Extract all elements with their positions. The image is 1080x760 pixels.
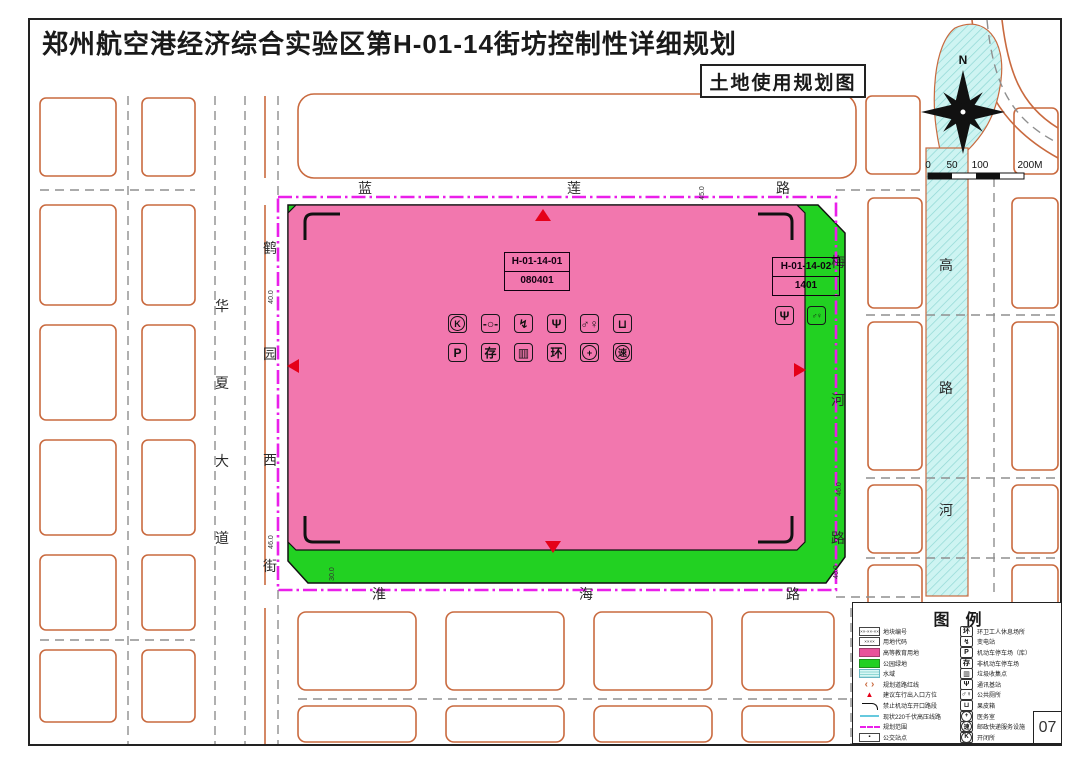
legend-label: 禁止机动车开口路段 — [883, 701, 937, 710]
legend-item: ×××× 用地代码 — [858, 637, 952, 648]
legend-item: Ψ 通讯基站 — [955, 679, 1057, 690]
icon-glyph: ⊔ — [964, 701, 970, 709]
scale-tick: 100 — [972, 160, 989, 171]
icon-glyph: K — [450, 316, 465, 331]
icon-glyph: Ψ — [964, 681, 970, 688]
express-service-icon: 速 — [613, 343, 632, 362]
legend-label: 现状220千伏高压线路 — [883, 712, 941, 721]
dimension-label: 46.0 — [833, 565, 840, 579]
map-subtitle: 土地使用规划图 — [700, 64, 866, 98]
legend-swatch — [859, 722, 880, 731]
legend-label: 环卫工人休息场所 — [977, 627, 1025, 636]
legend-label: 果皮箱 — [977, 701, 995, 710]
legend-label: 地块编号 — [883, 627, 907, 636]
dimension-label: 30.0 — [329, 567, 336, 581]
legend-swatch: ××-××-×× — [859, 627, 880, 636]
switch-station-icon: K — [448, 314, 467, 333]
river-label-gaoluhe: 高路河 — [938, 255, 954, 520]
legend-item: 建议车行出入口方位 — [858, 690, 952, 701]
bicycle-storage-icon: 存 — [960, 658, 973, 669]
garbage-collection-icon: ▥ — [960, 668, 973, 679]
north-label: N — [959, 53, 968, 67]
legend-label: 高等教育用地 — [883, 648, 919, 657]
legend-label: 建议车行出入口方位 — [883, 690, 937, 699]
icon-glyph: P — [453, 346, 461, 360]
plan-title: 郑州航空港经济综合实验区第H-01-14街坊控制性详细规划 — [42, 24, 737, 61]
legend-swatch — [859, 701, 880, 710]
legend-label: 公交站点 — [883, 733, 907, 742]
icon-glyph: ♂♀ — [812, 311, 821, 320]
icon-glyph: + — [582, 345, 597, 360]
public-toilet-icon: ♂♀ — [580, 314, 599, 333]
legend-label: 机动车停车场（库） — [977, 648, 1031, 657]
icon-glyph: 环 — [550, 344, 562, 361]
icon-glyph: 存 — [484, 344, 496, 361]
icon-glyph: 速 — [615, 345, 630, 360]
icon-glyph: Ψ — [780, 309, 790, 323]
legend-item: 禁止机动车开口路段 — [858, 700, 952, 711]
legend-label: 公园绿地 — [883, 659, 907, 668]
legend-item: P 机动车停车场（库） — [955, 647, 1057, 658]
icon-glyph: ▥ — [963, 670, 970, 678]
legend-swatch — [859, 659, 880, 668]
parcel-code: 1401 — [773, 276, 839, 295]
road-label-heyuanxi: 鹤园西街 — [262, 238, 278, 576]
legend-label: 水域 — [883, 669, 895, 678]
legend-title: 图例 — [858, 606, 1057, 626]
bicycle-storage-icon: 存 — [481, 343, 500, 362]
legend-swatch — [859, 733, 880, 742]
parking-icon: P — [960, 647, 973, 658]
scale-tick: 200M — [1017, 160, 1042, 171]
icon-glyph: -○- — [483, 317, 498, 331]
litter-bin-icon: ⊔ — [613, 314, 632, 333]
icon-glyph: Ψ — [552, 317, 562, 331]
legend-label: 垃圾收集点 — [977, 669, 1007, 678]
legend-label: 医务室 — [977, 712, 995, 721]
parcel-label-1: H-01-14-01 080401 — [504, 252, 570, 291]
legend-swatch — [859, 680, 880, 689]
medical-icon: + — [580, 343, 599, 362]
legend-swatch — [859, 690, 880, 699]
legend-label: 非机动车停车场 — [977, 659, 1019, 668]
legend-swatch — [859, 648, 880, 657]
road-label-huaihai: 淮海路 — [372, 586, 800, 602]
medical-icon: + — [960, 711, 973, 722]
road-label-lanlian: 蓝莲路 — [358, 180, 790, 196]
sanitation-rest-icon: 环 — [960, 626, 973, 637]
legend-item: 水域 — [858, 668, 952, 679]
legend-item: 现状220千伏高压线路 — [858, 711, 952, 722]
icon-glyph: ⊔ — [618, 317, 628, 331]
road-label-meihe: 梅河路 — [830, 252, 846, 548]
garbage-collection-icon: ▥ — [514, 343, 533, 362]
telecom-tower-icon: Ψ — [775, 306, 794, 325]
legend-label: 变电站 — [977, 637, 995, 646]
legend-panel: 图例 ××-××-×× 地块编号 ×××× 用地代码 高等教育用地 — [852, 602, 1062, 744]
parcel-id: H-01-14-02 — [773, 258, 839, 276]
facility-icon-grid: K -○- ↯ Ψ ♂♀ ⊔ P 存 ▥ 环 — [448, 314, 632, 362]
legend-swatch — [859, 669, 880, 678]
substation-icon: ↯ — [960, 636, 973, 647]
scale-tick: 0 — [925, 160, 931, 171]
switch-station-icon: K — [960, 732, 973, 743]
legend-item: 存 非机动车停车场 — [955, 658, 1057, 669]
legend-item: 高等教育用地 — [858, 647, 952, 658]
legend-item: ⊔ 果皮箱 — [955, 700, 1057, 711]
sanitation-rest-icon: 环 — [547, 343, 566, 362]
scale-tick: 50 — [946, 160, 958, 171]
legend-item: ××-××-×× 地块编号 — [858, 626, 952, 637]
icon-glyph: ↯ — [964, 638, 970, 646]
legend-left-column: ××-××-×× 地块编号 ×××× 用地代码 高等教育用地 公园绿地 — [858, 626, 952, 743]
legend-item: 公交站点 — [858, 732, 952, 743]
parking-icon: P — [448, 343, 467, 362]
icon-glyph: ♂♀ — [581, 317, 599, 331]
legend-label: 规划范围 — [883, 722, 907, 731]
parcel-code: 080401 — [505, 271, 569, 290]
icon-glyph: P — [964, 649, 969, 656]
legend-label: 用地代码 — [883, 637, 907, 646]
icon-glyph: ▥ — [518, 346, 529, 360]
legend-item: 公园绿地 — [858, 658, 952, 669]
icon-glyph: 速 — [961, 721, 972, 732]
legend-label: 邮政快递服务设施 — [977, 722, 1025, 731]
legend-label: 开闭所 — [977, 733, 995, 742]
road-label-huaxia: 华夏大道 — [214, 296, 230, 548]
legend-swatch — [859, 712, 880, 721]
public-toilet-icon: ♂♀ — [807, 306, 826, 325]
legend-swatch: ×××× — [859, 637, 880, 646]
legend-label: 公共厕所 — [977, 690, 1001, 699]
facility-icon-spots: Ψ ♂♀ — [775, 306, 826, 325]
parcel-label-2: H-01-14-02 1401 — [772, 257, 840, 296]
public-toilet-icon: ♂♀ — [960, 689, 973, 700]
litter-bin-icon: ⊔ — [960, 700, 973, 711]
icon-glyph: 存 — [963, 658, 970, 668]
icon-glyph: ♂♀ — [961, 691, 972, 698]
icon-glyph: 环 — [963, 626, 970, 636]
legend-item: 环 环卫工人休息场所 — [955, 626, 1057, 637]
express-service-icon: 速 — [960, 721, 973, 732]
telecom-tower-icon: Ψ — [960, 679, 973, 690]
legend-item: ↯ 变电站 — [955, 637, 1057, 648]
substation-icon: ↯ — [514, 314, 533, 333]
page-number: 07 — [1033, 711, 1062, 744]
telecom-tower-icon: Ψ — [547, 314, 566, 333]
legend-item: 规划范围 — [858, 721, 952, 732]
legend-item: ♂♀ 公共厕所 — [955, 690, 1057, 701]
parcel-id: H-01-14-01 — [505, 253, 569, 271]
valve-icon: -○- — [481, 314, 500, 333]
legend-label: 规划道路红线 — [883, 680, 919, 689]
legend-item: 规划道路红线 — [858, 679, 952, 690]
legend-item: ▥ 垃圾收集点 — [955, 668, 1057, 679]
legend-label: 通讯基站 — [977, 680, 1001, 689]
icon-glyph: + — [961, 711, 972, 722]
icon-glyph: ↯ — [518, 317, 528, 331]
icon-glyph: K — [961, 732, 972, 743]
